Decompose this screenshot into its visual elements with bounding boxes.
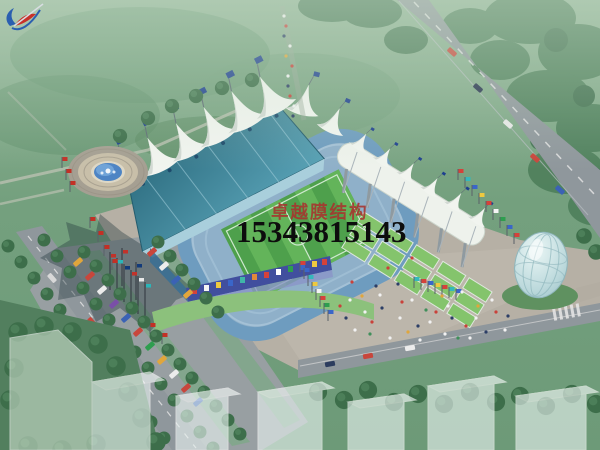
- scene-graphic: [0, 0, 600, 450]
- haze-overlay: [0, 0, 600, 170]
- stadium-aerial-rendering: 卓越膜结构 15343815143: [0, 0, 600, 450]
